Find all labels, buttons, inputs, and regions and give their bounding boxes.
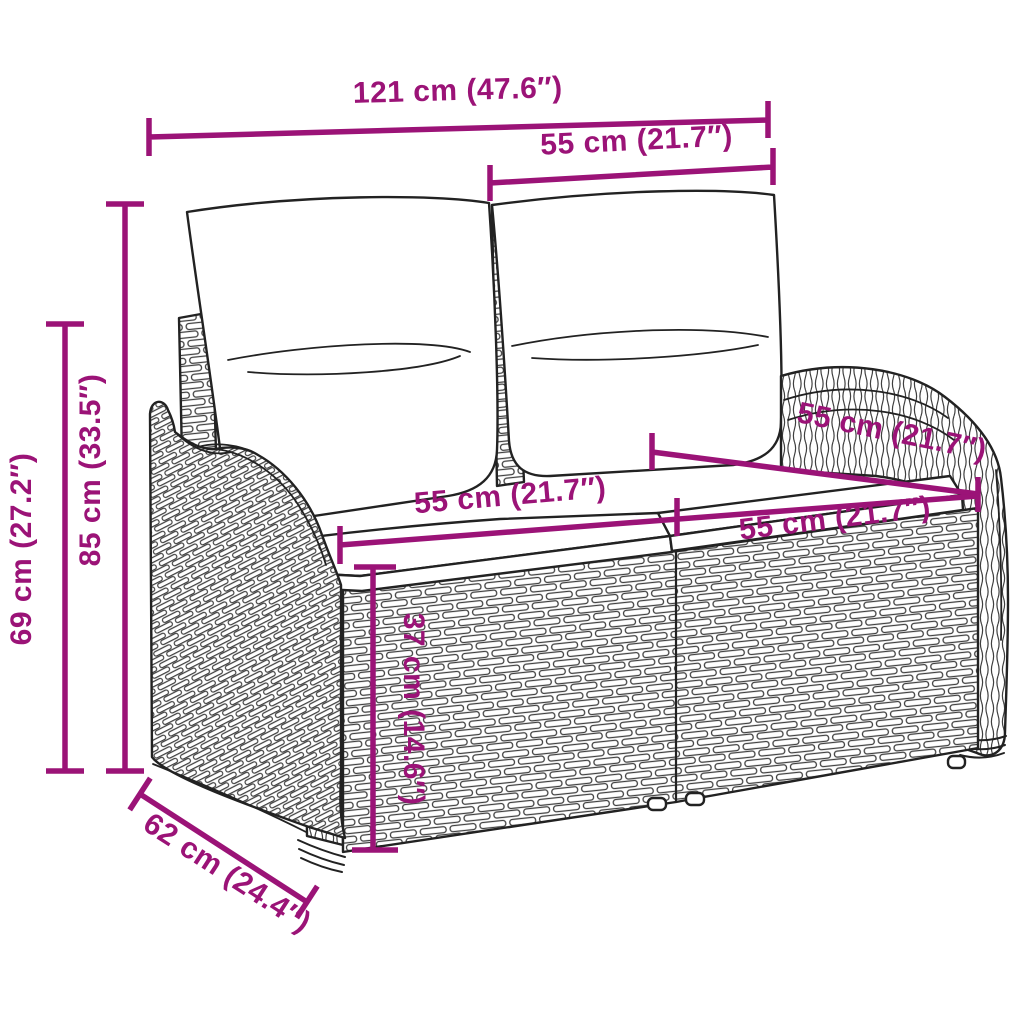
dim-back-cushion-width: 55 cm (21.7″) [490, 119, 773, 201]
dim-armrest-height-label: 69 cm (27.2″) [5, 453, 38, 646]
foot-left [648, 798, 666, 810]
diagram-svg: 121 cm (47.6″) 55 cm (21.7″) 85 cm (33.5… [0, 0, 1024, 1024]
foot-middle [686, 793, 704, 805]
foot-right [948, 756, 965, 768]
dim-total-height-line [106, 204, 144, 771]
dim-total-height-label: 85 cm (33.5″) [74, 374, 107, 567]
dim-armrest-height: 69 cm (27.2″) [5, 324, 84, 771]
dim-seat-height-label: 37 cm (14.6″) [397, 613, 430, 806]
product-dimension-diagram: 121 cm (47.6″) 55 cm (21.7″) 85 cm (33.5… [0, 0, 1024, 1024]
dim-overall-depth-label: 62 cm (24.4″) [137, 807, 317, 940]
dim-total-height: 85 cm (33.5″) [74, 204, 144, 771]
bench-line-art [150, 191, 1008, 872]
dim-overall-width-label: 121 cm (47.6″) [352, 71, 563, 110]
